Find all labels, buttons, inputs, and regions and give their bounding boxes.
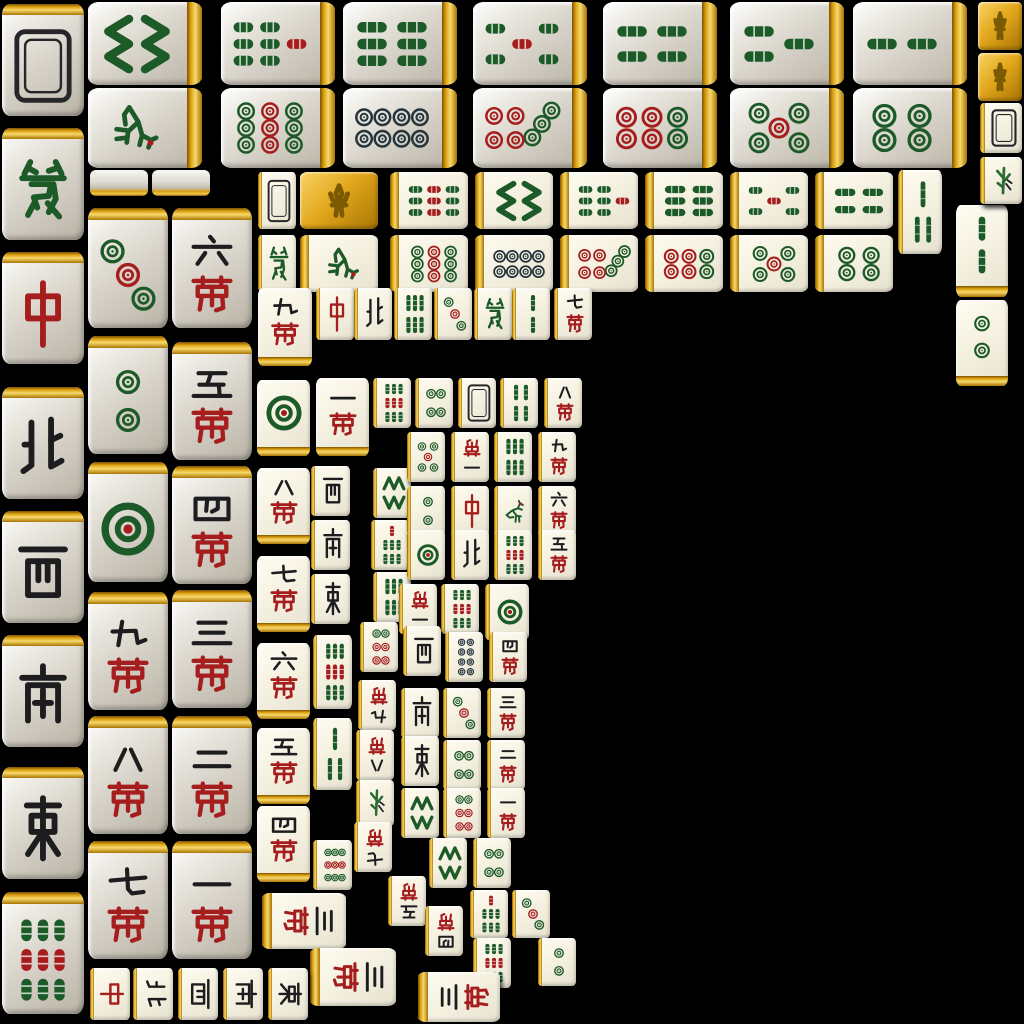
gold-edge bbox=[88, 592, 168, 604]
dot-face-icon bbox=[494, 588, 526, 635]
tile-flower[interactable] bbox=[300, 172, 378, 229]
tile-bamboo-9[interactable] bbox=[373, 378, 411, 428]
wan-face-icon bbox=[178, 738, 245, 824]
gold-edge bbox=[258, 235, 262, 292]
gold-edge bbox=[702, 2, 717, 85]
dot-face-icon bbox=[453, 636, 480, 678]
wan-face-icon bbox=[94, 614, 161, 700]
tile-wind-nan[interactable] bbox=[311, 520, 350, 570]
wan-face-icon bbox=[262, 294, 307, 349]
tile-dots-1[interactable] bbox=[407, 530, 445, 580]
tile-back[interactable] bbox=[258, 172, 296, 229]
gold-edge bbox=[407, 432, 411, 482]
wan-face-icon bbox=[320, 384, 365, 439]
bam-face-icon bbox=[230, 9, 310, 79]
gold-edge bbox=[320, 2, 335, 85]
wan-face-icon bbox=[178, 231, 245, 319]
tile-dots-3[interactable] bbox=[434, 288, 472, 340]
tile-character-7-rot180[interactable] bbox=[354, 822, 392, 872]
tile-character-1[interactable] bbox=[487, 788, 525, 838]
wan-face-icon bbox=[495, 792, 522, 834]
tile-bamboo-4-rot90[interactable] bbox=[815, 172, 893, 229]
tile-character-7[interactable] bbox=[257, 556, 310, 632]
tile-bamboo-9[interactable] bbox=[313, 635, 352, 709]
bam-face-icon bbox=[97, 94, 177, 161]
gold-edge bbox=[572, 2, 587, 85]
wind-face-icon bbox=[9, 656, 78, 738]
tile-back[interactable] bbox=[980, 103, 1022, 153]
tile-bamboo-8[interactable] bbox=[429, 838, 467, 888]
tile-dots-1[interactable] bbox=[257, 380, 310, 456]
tile-dots-1[interactable] bbox=[88, 462, 168, 582]
tile-dots-8-rot90[interactable] bbox=[343, 88, 457, 168]
tile-character-8-rot180[interactable] bbox=[356, 730, 394, 780]
dragon-face-icon bbox=[482, 292, 509, 336]
gold-edge bbox=[730, 172, 739, 229]
gold-edge bbox=[952, 88, 967, 168]
tile-dots-9-rot90[interactable] bbox=[390, 235, 468, 292]
gold-edge bbox=[354, 822, 358, 872]
wan-face-icon bbox=[178, 488, 245, 574]
wind-face-icon bbox=[319, 524, 347, 566]
tile-dots-3[interactable] bbox=[512, 890, 550, 938]
tile-bamboo-8-rot90[interactable] bbox=[475, 172, 553, 229]
gold-edge bbox=[418, 972, 428, 1022]
wan-face-icon bbox=[261, 734, 306, 788]
tile-bamboo-7-rot90[interactable] bbox=[221, 2, 335, 85]
gold-edge bbox=[494, 432, 498, 482]
wan-face-icon bbox=[362, 826, 389, 868]
wind-face-icon bbox=[409, 740, 436, 782]
plant-face-icon bbox=[364, 784, 391, 823]
tile-back[interactable] bbox=[458, 378, 496, 428]
bam-face-icon bbox=[316, 240, 371, 288]
tile-character-3-rot270[interactable] bbox=[418, 972, 500, 1022]
tile-character-5[interactable] bbox=[538, 530, 576, 580]
wan-face-icon bbox=[280, 897, 340, 944]
tile-character-3[interactable] bbox=[172, 590, 252, 708]
wan-face-icon bbox=[261, 649, 306, 703]
tile-dots-6-rot90[interactable] bbox=[603, 88, 717, 168]
tile-character-5[interactable] bbox=[172, 342, 252, 460]
dot-face-icon bbox=[862, 94, 942, 161]
tile-dots-3[interactable] bbox=[443, 688, 481, 738]
gold-edge bbox=[172, 841, 252, 853]
tile-bamboo-5-rot90[interactable] bbox=[730, 172, 808, 229]
wan-face-icon bbox=[495, 692, 522, 734]
gold-edge bbox=[560, 172, 569, 229]
tile-character-9-rot180[interactable] bbox=[358, 680, 396, 730]
dragon-face-icon bbox=[459, 490, 486, 532]
gold-edge bbox=[178, 968, 182, 1020]
wan-face-icon bbox=[94, 863, 161, 949]
gold-edge bbox=[451, 486, 455, 536]
tile-flower[interactable] bbox=[978, 2, 1022, 50]
dragon-face-icon bbox=[266, 240, 293, 288]
gold-edge bbox=[2, 252, 84, 263]
gold-edge bbox=[470, 890, 474, 938]
tile-character-3-rot90[interactable] bbox=[310, 948, 396, 1006]
gold-edge bbox=[956, 286, 1008, 297]
tile-character-7[interactable] bbox=[554, 288, 592, 340]
wan-face-icon bbox=[94, 738, 161, 824]
tile-character-5[interactable] bbox=[257, 728, 310, 804]
gold-edge bbox=[187, 2, 202, 85]
tile-dots-4[interactable] bbox=[415, 378, 453, 428]
bam-face-icon bbox=[491, 177, 546, 225]
wind-face-icon bbox=[319, 578, 347, 620]
dot-face-icon bbox=[415, 534, 442, 576]
bam-face-icon bbox=[502, 490, 529, 532]
gold-edge bbox=[360, 622, 364, 672]
gold-edge bbox=[258, 172, 262, 229]
dragon-face-icon bbox=[9, 273, 78, 355]
tile-character-6[interactable] bbox=[257, 643, 310, 719]
gold-edge bbox=[445, 632, 449, 682]
gold-edge bbox=[475, 235, 484, 292]
wan-face-icon bbox=[328, 953, 389, 1002]
tile-edge bbox=[90, 170, 148, 196]
gold-edge bbox=[2, 387, 84, 398]
tile-wind-bei[interactable] bbox=[2, 387, 84, 499]
tile-dots-4[interactable] bbox=[443, 740, 481, 790]
tile-character-8[interactable] bbox=[544, 378, 582, 428]
gold-edge bbox=[88, 841, 168, 853]
tile-dots-4-rot90[interactable] bbox=[853, 88, 967, 168]
tile-bamboo-9[interactable] bbox=[494, 530, 532, 580]
wind-face-icon bbox=[362, 292, 389, 336]
tile-bamboo-6-rot90[interactable] bbox=[343, 2, 457, 85]
wan-face-icon bbox=[433, 910, 460, 952]
dot-face-icon bbox=[739, 94, 819, 161]
tile-character-2[interactable] bbox=[172, 716, 252, 834]
gold-edge bbox=[487, 788, 491, 838]
tile-dots-2[interactable] bbox=[538, 938, 576, 986]
tile-bamboo-2[interactable] bbox=[512, 288, 550, 340]
tile-dots-4-rot90[interactable] bbox=[815, 235, 893, 292]
dragon-face-icon bbox=[9, 149, 78, 231]
gold-edge bbox=[442, 2, 457, 85]
gold-edge bbox=[702, 88, 717, 168]
tile-plant[interactable] bbox=[980, 157, 1022, 204]
wind-face-icon bbox=[276, 972, 305, 1016]
gold-edge bbox=[311, 574, 315, 624]
gold-edge bbox=[512, 890, 516, 938]
gold-edge bbox=[257, 447, 310, 456]
gold-edge bbox=[401, 736, 405, 786]
tile-dots-7-rot90[interactable] bbox=[560, 235, 638, 292]
gold-edge bbox=[554, 288, 558, 340]
tile-dots-5-rot90[interactable] bbox=[730, 88, 844, 168]
dot-face-icon bbox=[451, 792, 478, 834]
tile-dots-6-rot90[interactable] bbox=[645, 235, 723, 292]
tile-bamboo-8[interactable] bbox=[373, 468, 411, 518]
tile-bamboo-9[interactable] bbox=[2, 892, 84, 1014]
tile-dots-5-rot90[interactable] bbox=[730, 235, 808, 292]
tile-character-4[interactable] bbox=[489, 632, 527, 682]
tile-character-6[interactable] bbox=[172, 208, 252, 328]
gold-edge bbox=[90, 968, 94, 1020]
bam-face-icon bbox=[960, 212, 1004, 277]
tile-wind-xi-rot90[interactable] bbox=[178, 968, 218, 1020]
back-face-icon bbox=[9, 25, 78, 107]
gold-edge bbox=[458, 378, 462, 428]
tile-edge bbox=[152, 170, 210, 196]
gold-edge bbox=[172, 466, 252, 478]
tile-bamboo-5-rot90[interactable] bbox=[473, 2, 587, 85]
gold-edge bbox=[373, 468, 377, 518]
dot-face-icon bbox=[546, 942, 573, 982]
wan-face-icon bbox=[495, 744, 522, 786]
tile-wind-dong-rot90[interactable] bbox=[268, 968, 308, 1020]
tile-bamboo-1-rot90[interactable] bbox=[88, 88, 202, 168]
tile-wind-bei-rot90[interactable] bbox=[133, 968, 173, 1020]
tile-wind-bei[interactable] bbox=[354, 288, 392, 340]
bam-face-icon bbox=[381, 472, 408, 514]
tile-wind-nan[interactable] bbox=[401, 688, 439, 738]
tile-dots-3[interactable] bbox=[88, 208, 168, 328]
gold-edge bbox=[401, 788, 405, 838]
gold-edge bbox=[403, 626, 407, 676]
tile-bamboo-8[interactable] bbox=[401, 788, 439, 838]
bam-face-icon bbox=[508, 382, 535, 424]
gold-edge bbox=[172, 716, 252, 728]
gold-edge bbox=[187, 88, 202, 168]
bam-face-icon bbox=[862, 9, 942, 79]
dot-face-icon bbox=[415, 436, 442, 478]
tile-bamboo-3[interactable] bbox=[313, 718, 352, 790]
wan-face-icon bbox=[546, 534, 573, 576]
bam-face-icon bbox=[437, 842, 464, 884]
tile-dots-2[interactable] bbox=[407, 486, 445, 536]
gold-edge bbox=[300, 235, 309, 292]
tile-character-3-rot90[interactable] bbox=[262, 893, 346, 949]
wind-face-icon bbox=[411, 630, 438, 672]
bam-face-icon bbox=[321, 641, 349, 703]
gold-edge bbox=[489, 632, 493, 682]
tile-plant[interactable] bbox=[356, 780, 394, 826]
wan-face-icon bbox=[364, 734, 391, 776]
tile-dragon-zhong[interactable] bbox=[2, 252, 84, 364]
tile-character-2[interactable] bbox=[487, 740, 525, 790]
tile-character-4-rot180[interactable] bbox=[425, 906, 463, 956]
dragon-face-icon bbox=[98, 972, 127, 1016]
gold-edge bbox=[442, 88, 457, 168]
tile-bamboo-6[interactable] bbox=[494, 432, 532, 482]
dot-face-icon bbox=[442, 292, 469, 336]
wind-face-icon bbox=[409, 692, 436, 734]
bam-face-icon bbox=[502, 534, 529, 576]
tile-character-7[interactable] bbox=[88, 841, 168, 959]
gold-edge bbox=[2, 892, 84, 904]
tile-dots-9-rot90[interactable] bbox=[221, 88, 335, 168]
tile-dragon-zhong[interactable] bbox=[316, 288, 354, 340]
tile-dots-4[interactable] bbox=[473, 838, 511, 888]
tile-character-9[interactable] bbox=[88, 592, 168, 710]
gold-edge bbox=[88, 336, 168, 348]
wan-face-icon bbox=[407, 588, 434, 630]
tile-wind-dong[interactable] bbox=[311, 574, 350, 624]
gold-edge bbox=[313, 840, 317, 890]
tile-bamboo-6-rot90[interactable] bbox=[645, 172, 723, 229]
gold-edge bbox=[512, 288, 516, 340]
gold-edge bbox=[538, 432, 542, 482]
gold-edge bbox=[262, 893, 272, 949]
gold-edge bbox=[133, 968, 137, 1020]
gold-edge bbox=[487, 688, 491, 738]
dot-face-icon bbox=[230, 94, 310, 161]
wan-face-icon bbox=[178, 612, 245, 698]
tile-bamboo-9-rot90[interactable] bbox=[390, 172, 468, 229]
tile-bamboo-3[interactable] bbox=[898, 170, 942, 254]
tile-dragon-zhong-rot90[interactable] bbox=[90, 968, 130, 1020]
tile-character-9[interactable] bbox=[538, 432, 576, 482]
tile-character-3[interactable] bbox=[487, 688, 525, 738]
dot-face-icon bbox=[481, 842, 508, 884]
gold-edge bbox=[443, 688, 447, 738]
tile-wind-dong[interactable] bbox=[2, 767, 84, 879]
bam-face-icon bbox=[409, 792, 436, 834]
gold-edge bbox=[88, 716, 168, 728]
back-face-icon bbox=[466, 382, 493, 424]
dot-face-icon bbox=[960, 307, 1004, 368]
tile-bamboo-7[interactable] bbox=[470, 890, 508, 938]
tile-dots-9[interactable] bbox=[313, 840, 352, 890]
bam-face-icon bbox=[739, 9, 819, 79]
wan-face-icon bbox=[497, 636, 524, 678]
tile-bamboo-4-rot90[interactable] bbox=[603, 2, 717, 85]
gold-edge bbox=[898, 170, 903, 254]
tile-dragon-fa[interactable] bbox=[2, 128, 84, 240]
tile-bamboo-7-rot90[interactable] bbox=[560, 172, 638, 229]
wind-face-icon bbox=[319, 470, 347, 512]
gold-edge bbox=[645, 172, 654, 229]
tile-wind-bei[interactable] bbox=[451, 530, 489, 580]
gold-edge bbox=[172, 590, 252, 602]
bam-face-icon bbox=[379, 524, 406, 566]
bam-face-icon bbox=[352, 9, 432, 79]
wan-face-icon bbox=[261, 562, 306, 616]
tile-bamboo-7[interactable] bbox=[371, 520, 409, 570]
dot-face-icon bbox=[520, 894, 547, 934]
tile-character-1[interactable] bbox=[316, 378, 369, 456]
gold-edge bbox=[415, 378, 419, 428]
gold-edge bbox=[730, 235, 739, 292]
tile-character-1[interactable] bbox=[172, 841, 252, 959]
wan-face-icon bbox=[552, 382, 579, 424]
dot-face-icon bbox=[661, 240, 716, 288]
gold-edge bbox=[952, 2, 967, 85]
dot-face-icon bbox=[831, 240, 886, 288]
gold-edge bbox=[572, 88, 587, 168]
dragon-face-icon bbox=[324, 292, 351, 336]
tile-bamboo-8-rot90[interactable] bbox=[88, 2, 202, 85]
wind-face-icon bbox=[459, 534, 486, 576]
tile-wind-xi[interactable] bbox=[2, 511, 84, 623]
tile-dragon-fa[interactable] bbox=[258, 235, 296, 292]
bam-face-icon bbox=[746, 177, 801, 225]
gold-edge bbox=[560, 235, 569, 292]
gold-edge bbox=[645, 235, 654, 292]
tile-bamboo-3-rot90[interactable] bbox=[730, 2, 844, 85]
gold-edge bbox=[2, 767, 84, 778]
tile-wind-dong[interactable] bbox=[401, 736, 439, 786]
gold-edge bbox=[394, 288, 398, 340]
wan-face-icon bbox=[546, 436, 573, 478]
wind-face-icon bbox=[141, 972, 170, 1016]
tile-bamboo-2[interactable] bbox=[956, 205, 1008, 297]
wan-face-icon bbox=[178, 863, 245, 949]
gold-edge bbox=[538, 486, 542, 536]
tile-wind-xi[interactable] bbox=[403, 626, 441, 676]
tile-wind-nan-rot90[interactable] bbox=[223, 968, 263, 1020]
gold-edge bbox=[434, 288, 438, 340]
tile-bamboo-1[interactable] bbox=[494, 486, 532, 536]
wan-face-icon bbox=[178, 364, 245, 450]
tile-dragon-zhong[interactable] bbox=[451, 486, 489, 536]
tile-bamboo-1-rot90[interactable] bbox=[300, 235, 378, 292]
gold-edge bbox=[443, 788, 447, 838]
bam-face-icon bbox=[478, 894, 505, 934]
tile-dots-8-rot90[interactable] bbox=[475, 235, 553, 292]
gold-edge bbox=[407, 486, 411, 536]
gold-edge bbox=[320, 88, 335, 168]
tile-character-1-rot180[interactable] bbox=[451, 432, 489, 482]
tile-dots-8[interactable] bbox=[445, 632, 483, 682]
tile-dots-2[interactable] bbox=[956, 300, 1008, 386]
wan-face-icon bbox=[459, 436, 486, 478]
gold-edge bbox=[373, 378, 377, 428]
tile-bamboo-4[interactable] bbox=[500, 378, 538, 428]
wind-face-icon bbox=[9, 788, 78, 870]
tile-dragon-fa[interactable] bbox=[474, 288, 512, 340]
bam-face-icon bbox=[381, 382, 408, 424]
gold-edge bbox=[358, 680, 362, 730]
back-face-icon bbox=[988, 107, 1018, 149]
tile-dots-6[interactable] bbox=[443, 788, 481, 838]
tile-character-4[interactable] bbox=[172, 466, 252, 584]
tile-wind-nan[interactable] bbox=[2, 635, 84, 747]
wan-face-icon bbox=[261, 474, 306, 528]
tile-bamboo-6[interactable] bbox=[394, 288, 432, 340]
bam-face-icon bbox=[482, 9, 562, 79]
tile-character-8[interactable] bbox=[88, 716, 168, 834]
tile-wind-xi[interactable] bbox=[311, 466, 350, 516]
tile-dots-7-rot90[interactable] bbox=[473, 88, 587, 168]
gold-edge bbox=[310, 948, 320, 1006]
tile-character-6[interactable] bbox=[538, 486, 576, 536]
tile-bamboo-2-rot90[interactable] bbox=[853, 2, 967, 85]
tile-dots-6[interactable] bbox=[360, 622, 398, 672]
dot-face-icon bbox=[491, 240, 546, 288]
gold-edge bbox=[429, 838, 433, 888]
tile-back[interactable] bbox=[2, 4, 84, 116]
tile-bamboo-9[interactable] bbox=[441, 584, 479, 634]
gold-edge bbox=[316, 447, 369, 456]
tile-character-9[interactable] bbox=[258, 288, 312, 366]
bam-face-icon bbox=[502, 436, 529, 478]
gold-edge bbox=[257, 710, 310, 719]
gold-edge bbox=[2, 635, 84, 646]
gold-edge bbox=[390, 172, 399, 229]
tile-flower[interactable] bbox=[978, 53, 1022, 101]
tile-dots-2[interactable] bbox=[88, 336, 168, 454]
wind-face-icon bbox=[9, 408, 78, 490]
tile-character-4[interactable] bbox=[257, 806, 310, 882]
tile-character-5-rot180[interactable] bbox=[388, 876, 426, 926]
tile-character-8[interactable] bbox=[257, 468, 310, 544]
tile-dots-5[interactable] bbox=[407, 432, 445, 482]
